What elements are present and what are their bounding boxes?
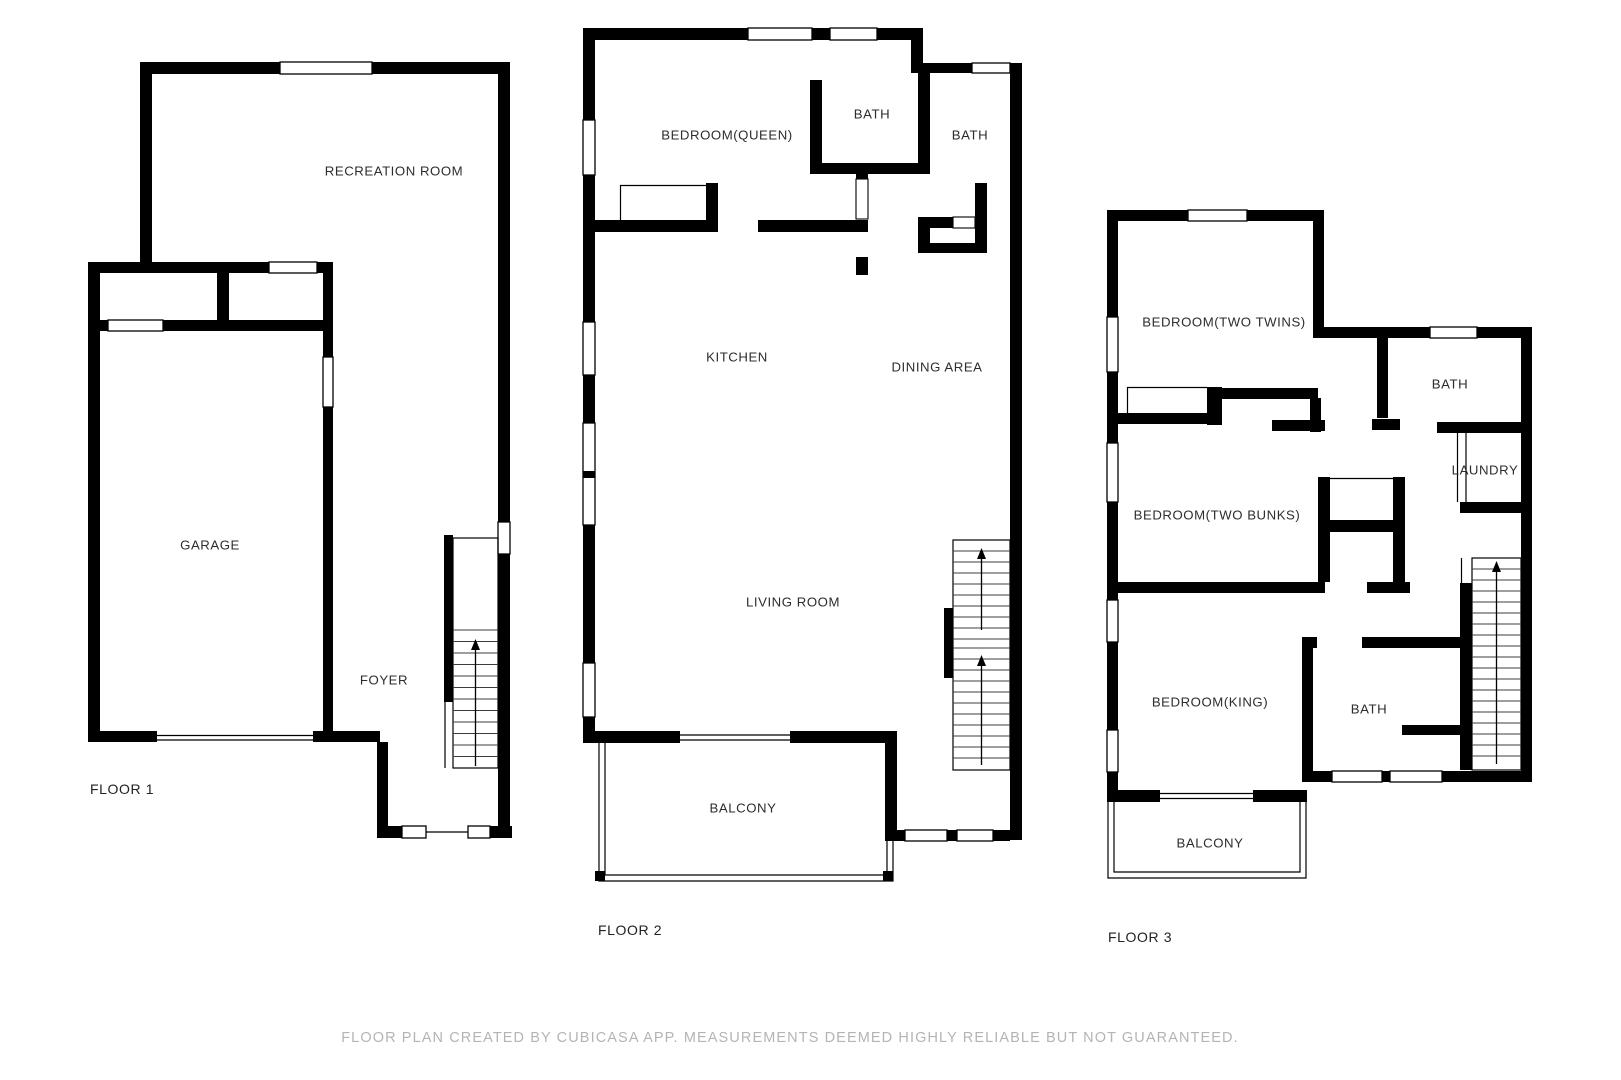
room-label-bath-f3-lower: BATH xyxy=(1351,702,1387,717)
garage-door xyxy=(157,736,313,741)
stairs-floor2 xyxy=(953,540,1010,770)
room-label-balcony-f3: BALCONY xyxy=(1177,836,1244,851)
room-label-dining-area: DINING AREA xyxy=(891,360,982,375)
room-label-foyer: FOYER xyxy=(360,673,408,688)
room-label-bedroom-two-bunks: BEDROOM(TWO BUNKS) xyxy=(1134,508,1301,523)
room-label-bath-f3-upper: BATH xyxy=(1432,377,1468,392)
floor2-doors xyxy=(856,179,975,228)
room-label-living-room: LIVING ROOM xyxy=(746,595,840,610)
room-label-balcony-f2: BALCONY xyxy=(710,801,777,816)
stairs-up-arrow-icon xyxy=(977,548,986,630)
room-label-garage: GARAGE xyxy=(180,538,240,553)
living-room-opening xyxy=(680,735,790,740)
floor-label-3: FLOOR 3 xyxy=(1108,929,1172,945)
floor2-walls xyxy=(583,28,1022,841)
room-label-bedroom-queen: BEDROOM(QUEEN) xyxy=(661,128,793,143)
stairs-floor1 xyxy=(445,538,498,768)
room-label-bath-f2-1: BATH xyxy=(854,107,890,122)
room-label-bedroom-king: BEDROOM(KING) xyxy=(1152,695,1268,710)
floor-plan-drawing xyxy=(0,0,1621,1080)
floor2-plan xyxy=(583,28,1022,881)
floor-label-2: FLOOR 2 xyxy=(598,922,662,938)
stairs-up-arrow-icon xyxy=(977,655,986,765)
room-label-kitchen: KITCHEN xyxy=(706,350,768,365)
room-label-bath-f2-2: BATH xyxy=(952,128,988,143)
floor3-closets xyxy=(1127,387,1393,479)
king-balcony-opening xyxy=(1160,794,1253,799)
floor3-walls xyxy=(1107,210,1532,802)
pantry-closet xyxy=(620,185,706,220)
room-label-recreation-room: RECREATION ROOM xyxy=(325,164,463,179)
room-label-bedroom-two-twins: BEDROOM(TWO TWINS) xyxy=(1142,315,1306,330)
floor3-plan xyxy=(1107,210,1532,878)
stairs-up-arrow-icon xyxy=(471,639,480,766)
room-label-laundry: LAUNDRY xyxy=(1452,463,1519,478)
floor2-windows xyxy=(583,28,1010,841)
floor-label-1: FLOOR 1 xyxy=(90,781,154,797)
disclaimer-text: FLOOR PLAN CREATED BY CUBICASA APP. MEAS… xyxy=(341,1030,1239,1046)
floor-plan-canvas: RECREATION ROOM GARAGE FOYER FLOOR 1 BED… xyxy=(0,0,1621,1080)
